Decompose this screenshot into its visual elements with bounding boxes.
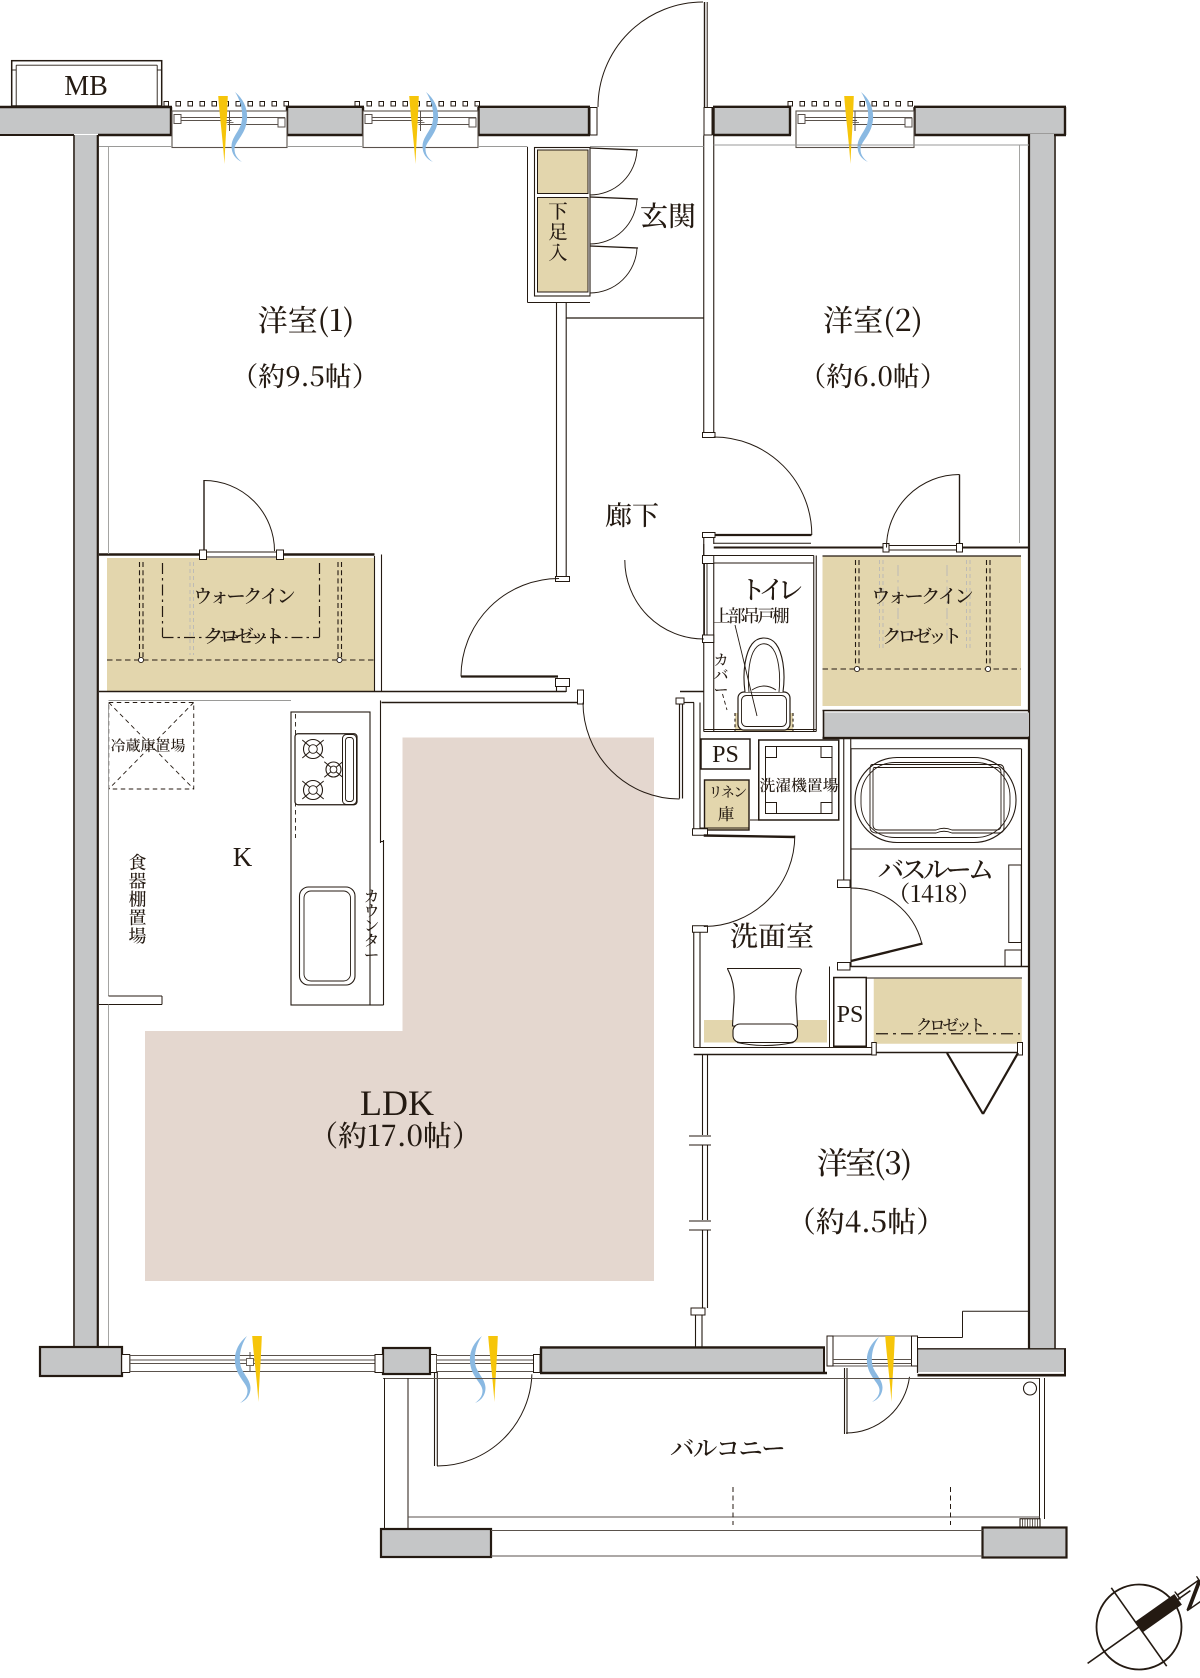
svg-text:PS: PS: [712, 742, 739, 768]
svg-text:MB: MB: [64, 71, 108, 102]
svg-text:LDK: LDK: [360, 1083, 434, 1123]
svg-text:PS: PS: [837, 1002, 864, 1028]
svg-text:K: K: [233, 842, 253, 872]
